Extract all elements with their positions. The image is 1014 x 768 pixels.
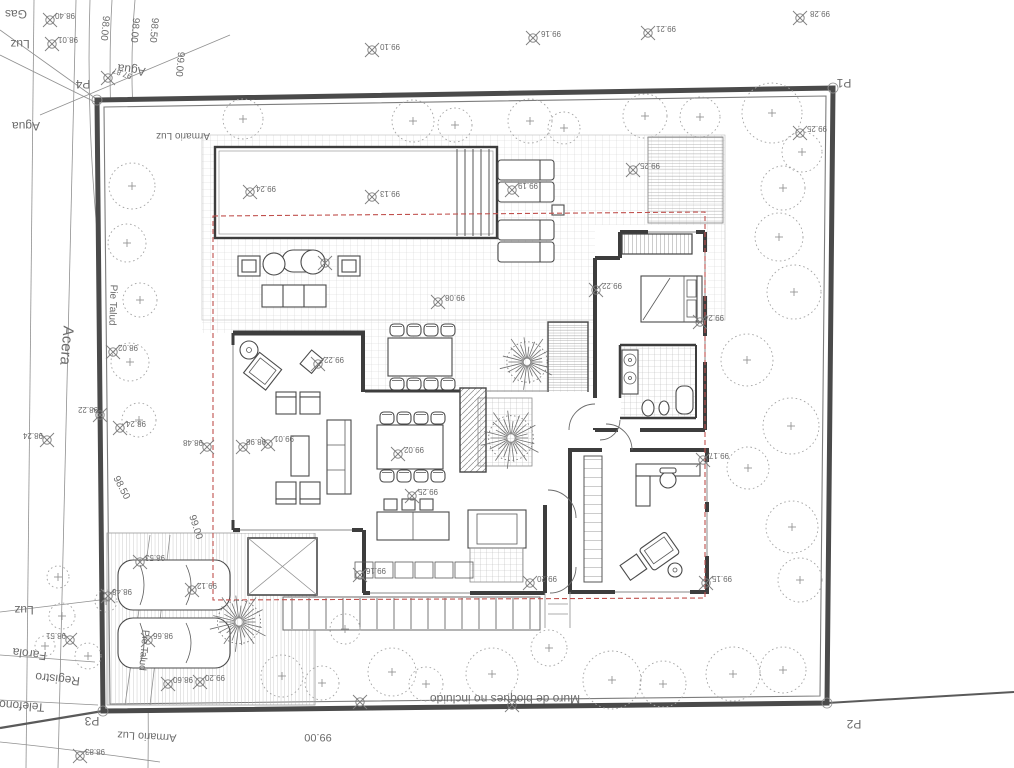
elevation-label: 98.02 (117, 343, 138, 352)
elevation-label: 99.08 (444, 293, 465, 302)
elevation-label: 98.24 (22, 431, 43, 440)
contour-label: 98.00 (128, 17, 141, 43)
office-closet (584, 456, 602, 582)
utility-label: Gas (5, 7, 27, 21)
utility-label: Agua (12, 119, 40, 133)
corner-point-label: P3 (84, 714, 99, 728)
elevation-label: 98.22 (77, 405, 98, 414)
elevation-label: 98.40 (54, 11, 75, 20)
elevation-label: 99.02 (403, 445, 424, 454)
contour-label: 99.00 (173, 51, 186, 77)
survey-mark-icon (793, 11, 807, 25)
elevation-label: 99.01 (273, 434, 294, 443)
fireplace-wall (460, 388, 486, 472)
elevation-label: 99.12 (196, 581, 217, 590)
survey-mark-icon (526, 31, 540, 45)
elevation-label: 99.10 (379, 42, 400, 51)
utility-label: Armario Luz (117, 728, 177, 743)
elevation-label: 99.17 (708, 451, 729, 460)
bidet (659, 401, 669, 415)
deck-steps (283, 597, 540, 630)
bathroom-fixtures (621, 346, 695, 417)
elevation-label: 99.25 (806, 124, 827, 133)
street-label: Acera (56, 325, 76, 366)
desk-chair (660, 472, 676, 488)
elevation-label: 99.24 (703, 313, 724, 322)
sofa (327, 420, 351, 494)
utility-label: Registro (34, 670, 80, 689)
elevation-label: 98.24 (125, 419, 146, 428)
survey-mark-icon (45, 37, 59, 51)
elevation-label: 98.98 (245, 437, 266, 446)
tree-icon (75, 643, 101, 669)
bathtub (676, 386, 693, 414)
elevation-label: 99.24 (255, 184, 276, 193)
elevation-label: 98.66 (152, 631, 173, 640)
elevation-label: 99.20 (536, 574, 557, 583)
pergola-roof (648, 137, 723, 223)
elevation-label: 98.01 (57, 35, 78, 44)
terrain-label: Pie Talud (106, 284, 118, 325)
elevation-label: 99.16 (365, 566, 386, 575)
utility-label: Armario Luz (156, 130, 210, 141)
elevation-label: 99.19 (517, 181, 538, 190)
elevation-label: 98.48 (182, 438, 203, 447)
utility-label: Luz (14, 603, 33, 617)
bed (641, 276, 702, 322)
utility-label: Telefono (0, 697, 45, 714)
corner-point-label: P4 (75, 77, 90, 91)
entry-porch-paving (248, 538, 317, 595)
elevation-label: 98.53 (144, 553, 165, 562)
utility-label: Luz (10, 37, 29, 51)
elevation-label: 99.16 (540, 29, 561, 38)
car (118, 618, 230, 668)
floor-plan-viewport: GasLuzAguaAguaAceraPie TaludPie TaludLuz… (0, 0, 1014, 768)
contour-label: 98.50 (147, 17, 160, 43)
elevation-label: 98.51 (45, 631, 66, 640)
survey-mark-icon (365, 43, 379, 57)
corner-point-label: P2 (846, 717, 861, 731)
survey-mark-icon (43, 13, 57, 27)
contour-label: 98.00 (98, 15, 111, 41)
wall-note-label: Muro de bloques no incluido (430, 692, 580, 706)
toilet (642, 400, 654, 416)
survey-mark-icon (641, 26, 655, 40)
elevation-label: 99.21 (655, 24, 676, 33)
elevation-label: 99.13 (379, 189, 400, 198)
utility-label: Farola (11, 645, 47, 663)
elevation-label: 98.60 (172, 675, 193, 684)
elevation-label: 99.22 (323, 355, 344, 364)
elevation-label: 99.15 (711, 574, 732, 583)
contour-label: 99.00 (304, 731, 332, 743)
elevation-label: 98.83 (84, 747, 105, 756)
outdoor-table (388, 338, 452, 376)
corner-point-label: P1 (836, 76, 851, 90)
elevation-label: 98.48 (111, 587, 132, 596)
tree-icon (47, 566, 69, 588)
elevation-label: 99.28 (809, 9, 830, 18)
elevation-label: 99.20 (204, 673, 225, 682)
elevation-label: 99.25 (639, 161, 660, 170)
elevation-label: 99.25 (417, 487, 438, 496)
elevation-label: 99.22 (601, 281, 622, 290)
site-plan-canvas: GasLuzAguaAguaAceraPie TaludPie TaludLuz… (0, 0, 1014, 768)
round-table (240, 341, 258, 359)
wardrobe (622, 234, 692, 254)
